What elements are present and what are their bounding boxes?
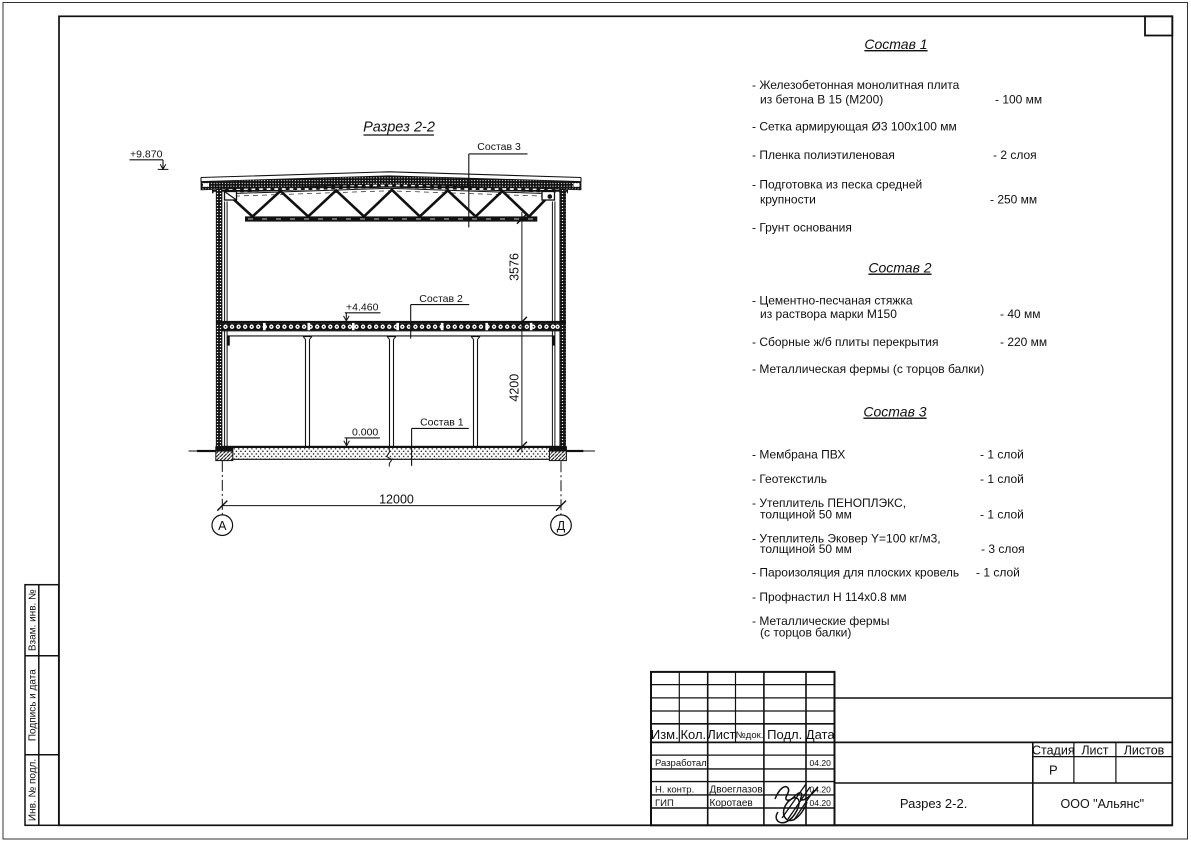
svg-text:4200: 4200 <box>508 374 522 402</box>
svg-text:ООО "Альянс": ООО "Альянс" <box>1061 797 1145 811</box>
svg-text:- 1 слой: - 1 слой <box>980 447 1024 461</box>
svg-text:- Пароизоляция для плоских кро: - Пароизоляция для плоских кровель <box>752 565 959 579</box>
svg-text:Р: Р <box>1049 763 1058 778</box>
svg-text:12000: 12000 <box>379 492 414 506</box>
svg-text:Состав 2: Состав 2 <box>868 260 931 276</box>
svg-text:3576: 3576 <box>508 253 522 281</box>
svg-text:- Подготовка из песка средней: - Подготовка из песка средней <box>752 177 922 191</box>
svg-text:Лист: Лист <box>707 727 735 742</box>
svg-text:- Пленка полиэтиленовая: - Пленка полиэтиленовая <box>752 148 895 162</box>
svg-text:Разработал: Разработал <box>655 758 707 769</box>
svg-text:№док.: №док. <box>736 730 764 741</box>
svg-text:Дата: Дата <box>806 727 836 742</box>
svg-text:из раствора марки М150: из раствора марки М150 <box>760 307 897 321</box>
svg-text:Состав 3: Состав 3 <box>477 141 521 153</box>
svg-text:- Геотекстиль: - Геотекстиль <box>752 472 827 486</box>
svg-text:+4.460: +4.460 <box>346 301 379 313</box>
svg-text:- 220 мм: - 220 мм <box>1000 335 1047 349</box>
svg-text:крупности: крупности <box>760 192 816 206</box>
svg-text:толщиной 50 мм: толщиной 50 мм <box>760 542 852 556</box>
svg-text:- 250 мм: - 250 мм <box>990 192 1037 206</box>
svg-text:Состав 3: Состав 3 <box>863 404 926 420</box>
svg-text:Д: Д <box>557 519 566 533</box>
svg-text:Разрез 2-2: Разрез 2-2 <box>363 120 435 136</box>
svg-text:Подпись и дата: Подпись и дата <box>28 669 39 741</box>
svg-text:Инв. № подл.: Инв. № подл. <box>28 759 39 821</box>
svg-text:Подл.: Подл. <box>767 727 802 742</box>
svg-text:Кол.: Кол. <box>680 727 706 742</box>
svg-text:0.000: 0.000 <box>352 426 378 438</box>
svg-text:04.20: 04.20 <box>810 798 832 808</box>
svg-text:Состав 2: Состав 2 <box>419 293 463 305</box>
svg-text:- Железобетонная монолитная п: - Железобетонная монолитная плита <box>752 78 960 92</box>
svg-text:- Сборные ж/б плиты перекрытия: - Сборные ж/б плиты перекрытия <box>752 335 938 349</box>
svg-text:Взам. инв. №: Взам. инв. № <box>28 589 39 651</box>
svg-text:Лист: Лист <box>1081 743 1108 757</box>
svg-text:Разрез 2-2.: Разрез 2-2. <box>900 796 967 811</box>
svg-text:- 1 слой: - 1 слой <box>976 565 1020 579</box>
svg-text:Листов: Листов <box>1124 743 1165 757</box>
svg-text:- Грунт основания: - Грунт основания <box>752 220 852 234</box>
svg-text:- 100 мм: - 100 мм <box>995 93 1042 107</box>
svg-text:Стадия: Стадия <box>1032 743 1075 757</box>
svg-text:- Металлическая фермы (с торцо: - Металлическая фермы (с торцов балки) <box>752 362 984 376</box>
svg-text:Изм.: Изм. <box>651 727 679 742</box>
svg-text:из бетона В 15 (М200): из бетона В 15 (М200) <box>760 93 883 107</box>
svg-text:Н. контр.: Н. контр. <box>655 784 694 795</box>
svg-text:- 1 слой: - 1 слой <box>980 472 1024 486</box>
svg-text:толщиной 50 мм: толщиной 50 мм <box>760 507 852 521</box>
svg-text:Двоеглазов: Двоеглазов <box>710 784 763 795</box>
svg-text:- Профнастил Н 114х0.8 мм: - Профнастил Н 114х0.8 мм <box>752 590 907 604</box>
svg-text:- Мембрана ПВХ: - Мембрана ПВХ <box>752 447 845 461</box>
svg-text:ГИП: ГИП <box>655 798 674 809</box>
svg-text:- Цементно-песчаная стяжка: - Цементно-песчаная стяжка <box>752 293 913 307</box>
svg-text:04.20: 04.20 <box>810 758 832 768</box>
svg-text:Состав 1: Состав 1 <box>864 36 927 52</box>
svg-text:- 3 слоя: - 3 слоя <box>981 542 1025 556</box>
svg-text:(с торцов балки): (с торцов балки) <box>760 625 851 639</box>
svg-text:+9.870: +9.870 <box>130 148 163 160</box>
svg-text:А: А <box>218 519 227 533</box>
svg-text:- 40 мм: - 40 мм <box>1000 307 1041 321</box>
svg-text:Состав 1: Состав 1 <box>420 416 464 428</box>
svg-text:Коротаев: Коротаев <box>710 798 753 809</box>
svg-text:- Сетка армирующая Ø3 100х100: - Сетка армирующая Ø3 100х100 мм <box>752 120 957 134</box>
svg-text:- 2 слоя: - 2 слоя <box>993 148 1037 162</box>
svg-text:- 1 слой: - 1 слой <box>980 507 1024 521</box>
